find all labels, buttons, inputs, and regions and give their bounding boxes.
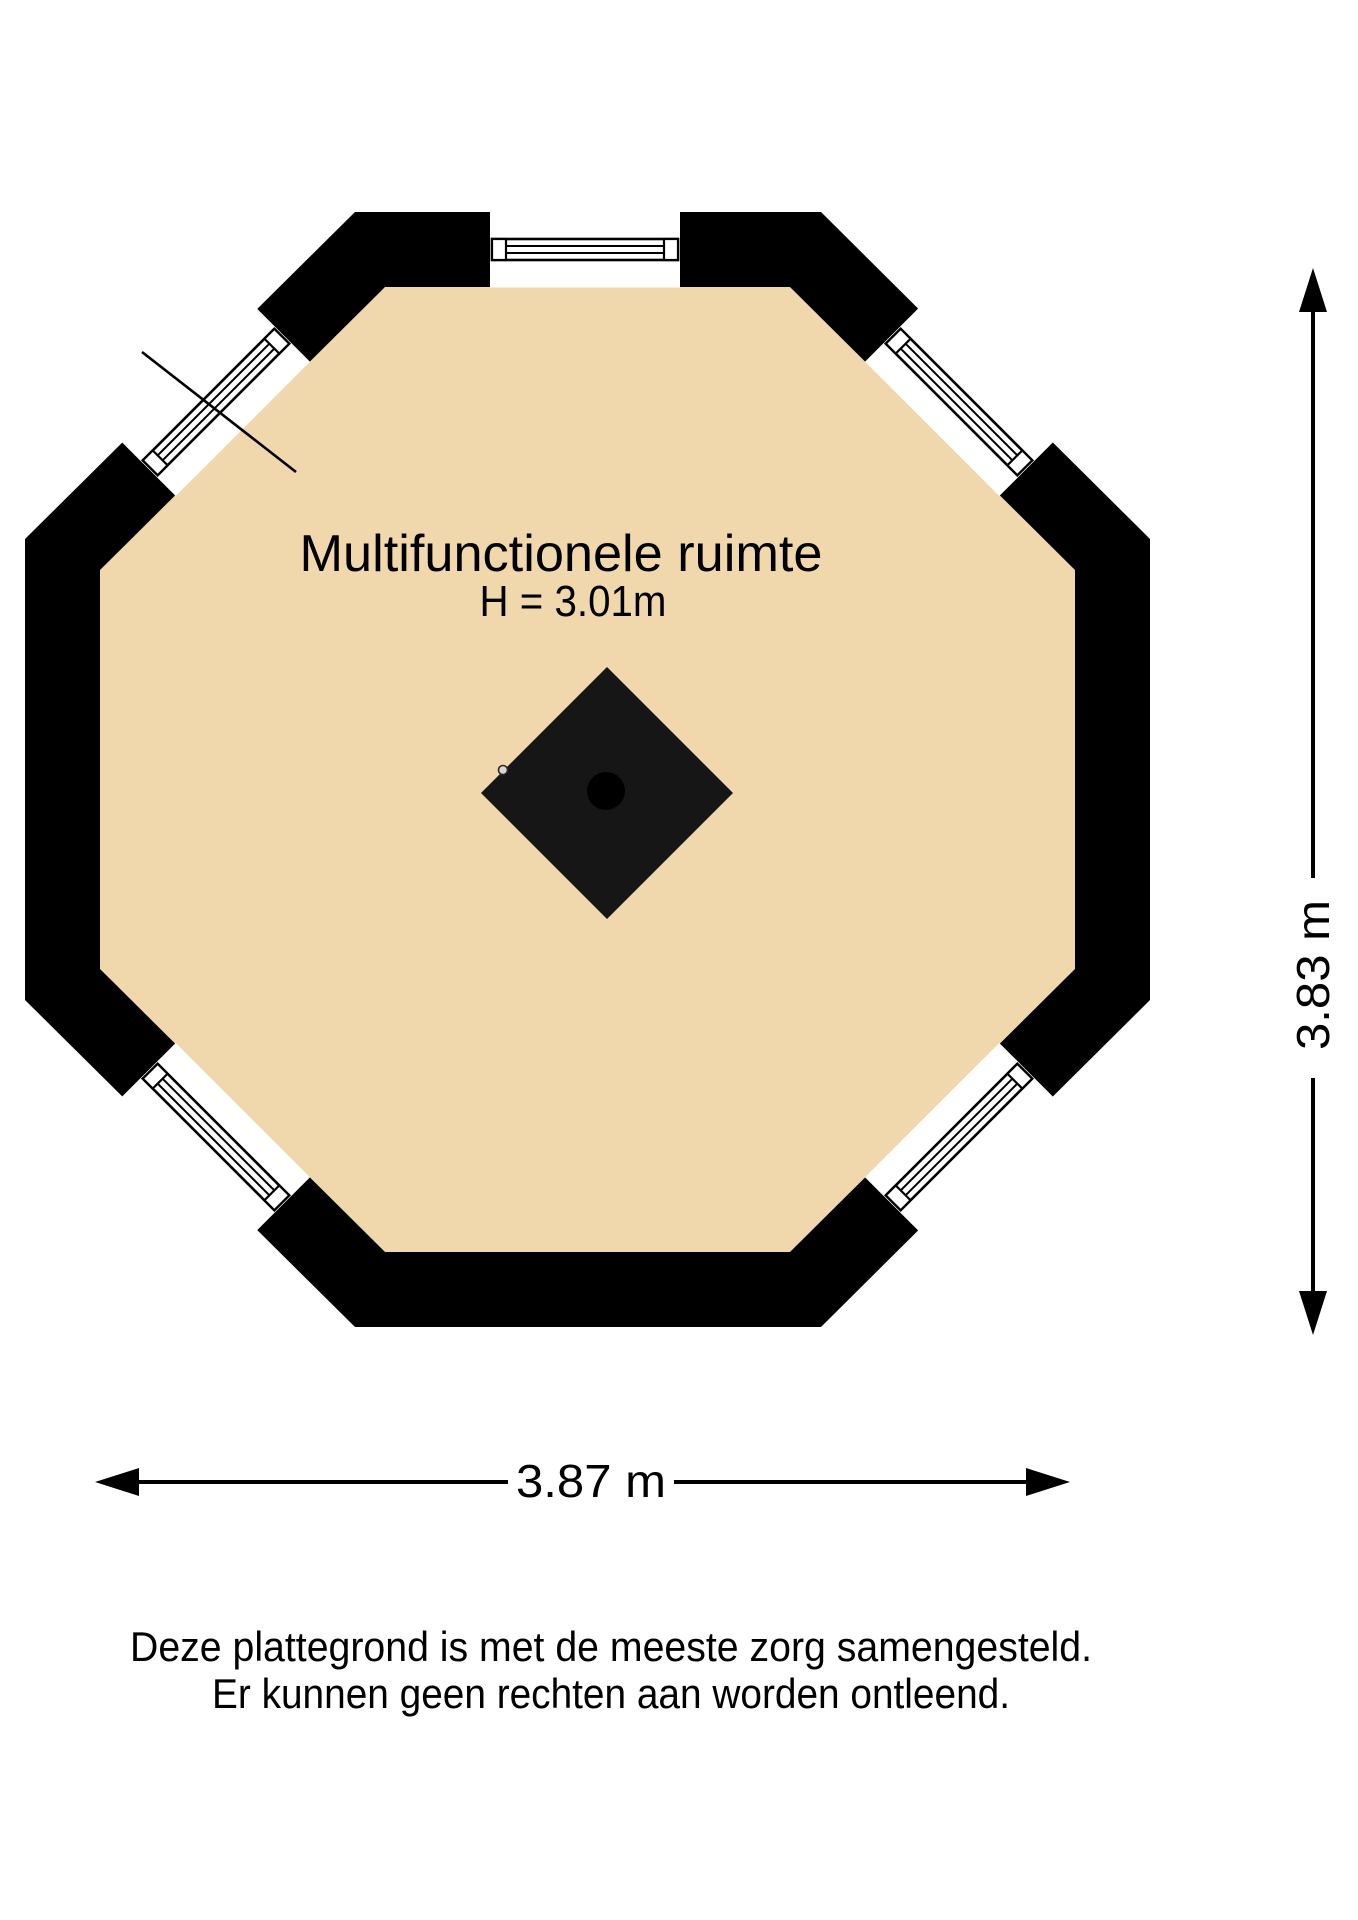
dimension-height-label: 3.83 m	[1287, 900, 1339, 1050]
disclaimer-line-1: Deze plattegrond is met de meeste zorg s…	[130, 1623, 1092, 1670]
window-pane	[492, 239, 678, 260]
dimension-width-label: 3.87 m	[516, 1455, 666, 1507]
arrow-right-icon	[1026, 1468, 1070, 1496]
arrow-up-icon	[1299, 268, 1327, 312]
floor-plan-svg: Multifunctionele ruimte H = 3.01m 3.87 m…	[0, 0, 1358, 1920]
floor-plan-page: Multifunctionele ruimte H = 3.01m 3.87 m…	[0, 0, 1358, 1920]
disclaimer-line-2: Er kunnen geen rechten aan worden ontlee…	[212, 1670, 1010, 1717]
window-top	[490, 212, 680, 288]
arrow-left-icon	[95, 1468, 139, 1496]
window-end-cap	[492, 239, 506, 260]
stove-core-circle-icon	[587, 772, 625, 810]
room-height-label: H = 3.01m	[480, 577, 667, 626]
dimension-width: 3.87 m	[95, 1455, 1070, 1507]
dimension-height: 3.83 m	[1287, 268, 1339, 1335]
window-end-cap	[664, 239, 678, 260]
knob-dot-icon	[499, 766, 508, 775]
room-label: Multifunctionele ruimte	[300, 525, 823, 583]
arrow-down-icon	[1299, 1291, 1327, 1335]
